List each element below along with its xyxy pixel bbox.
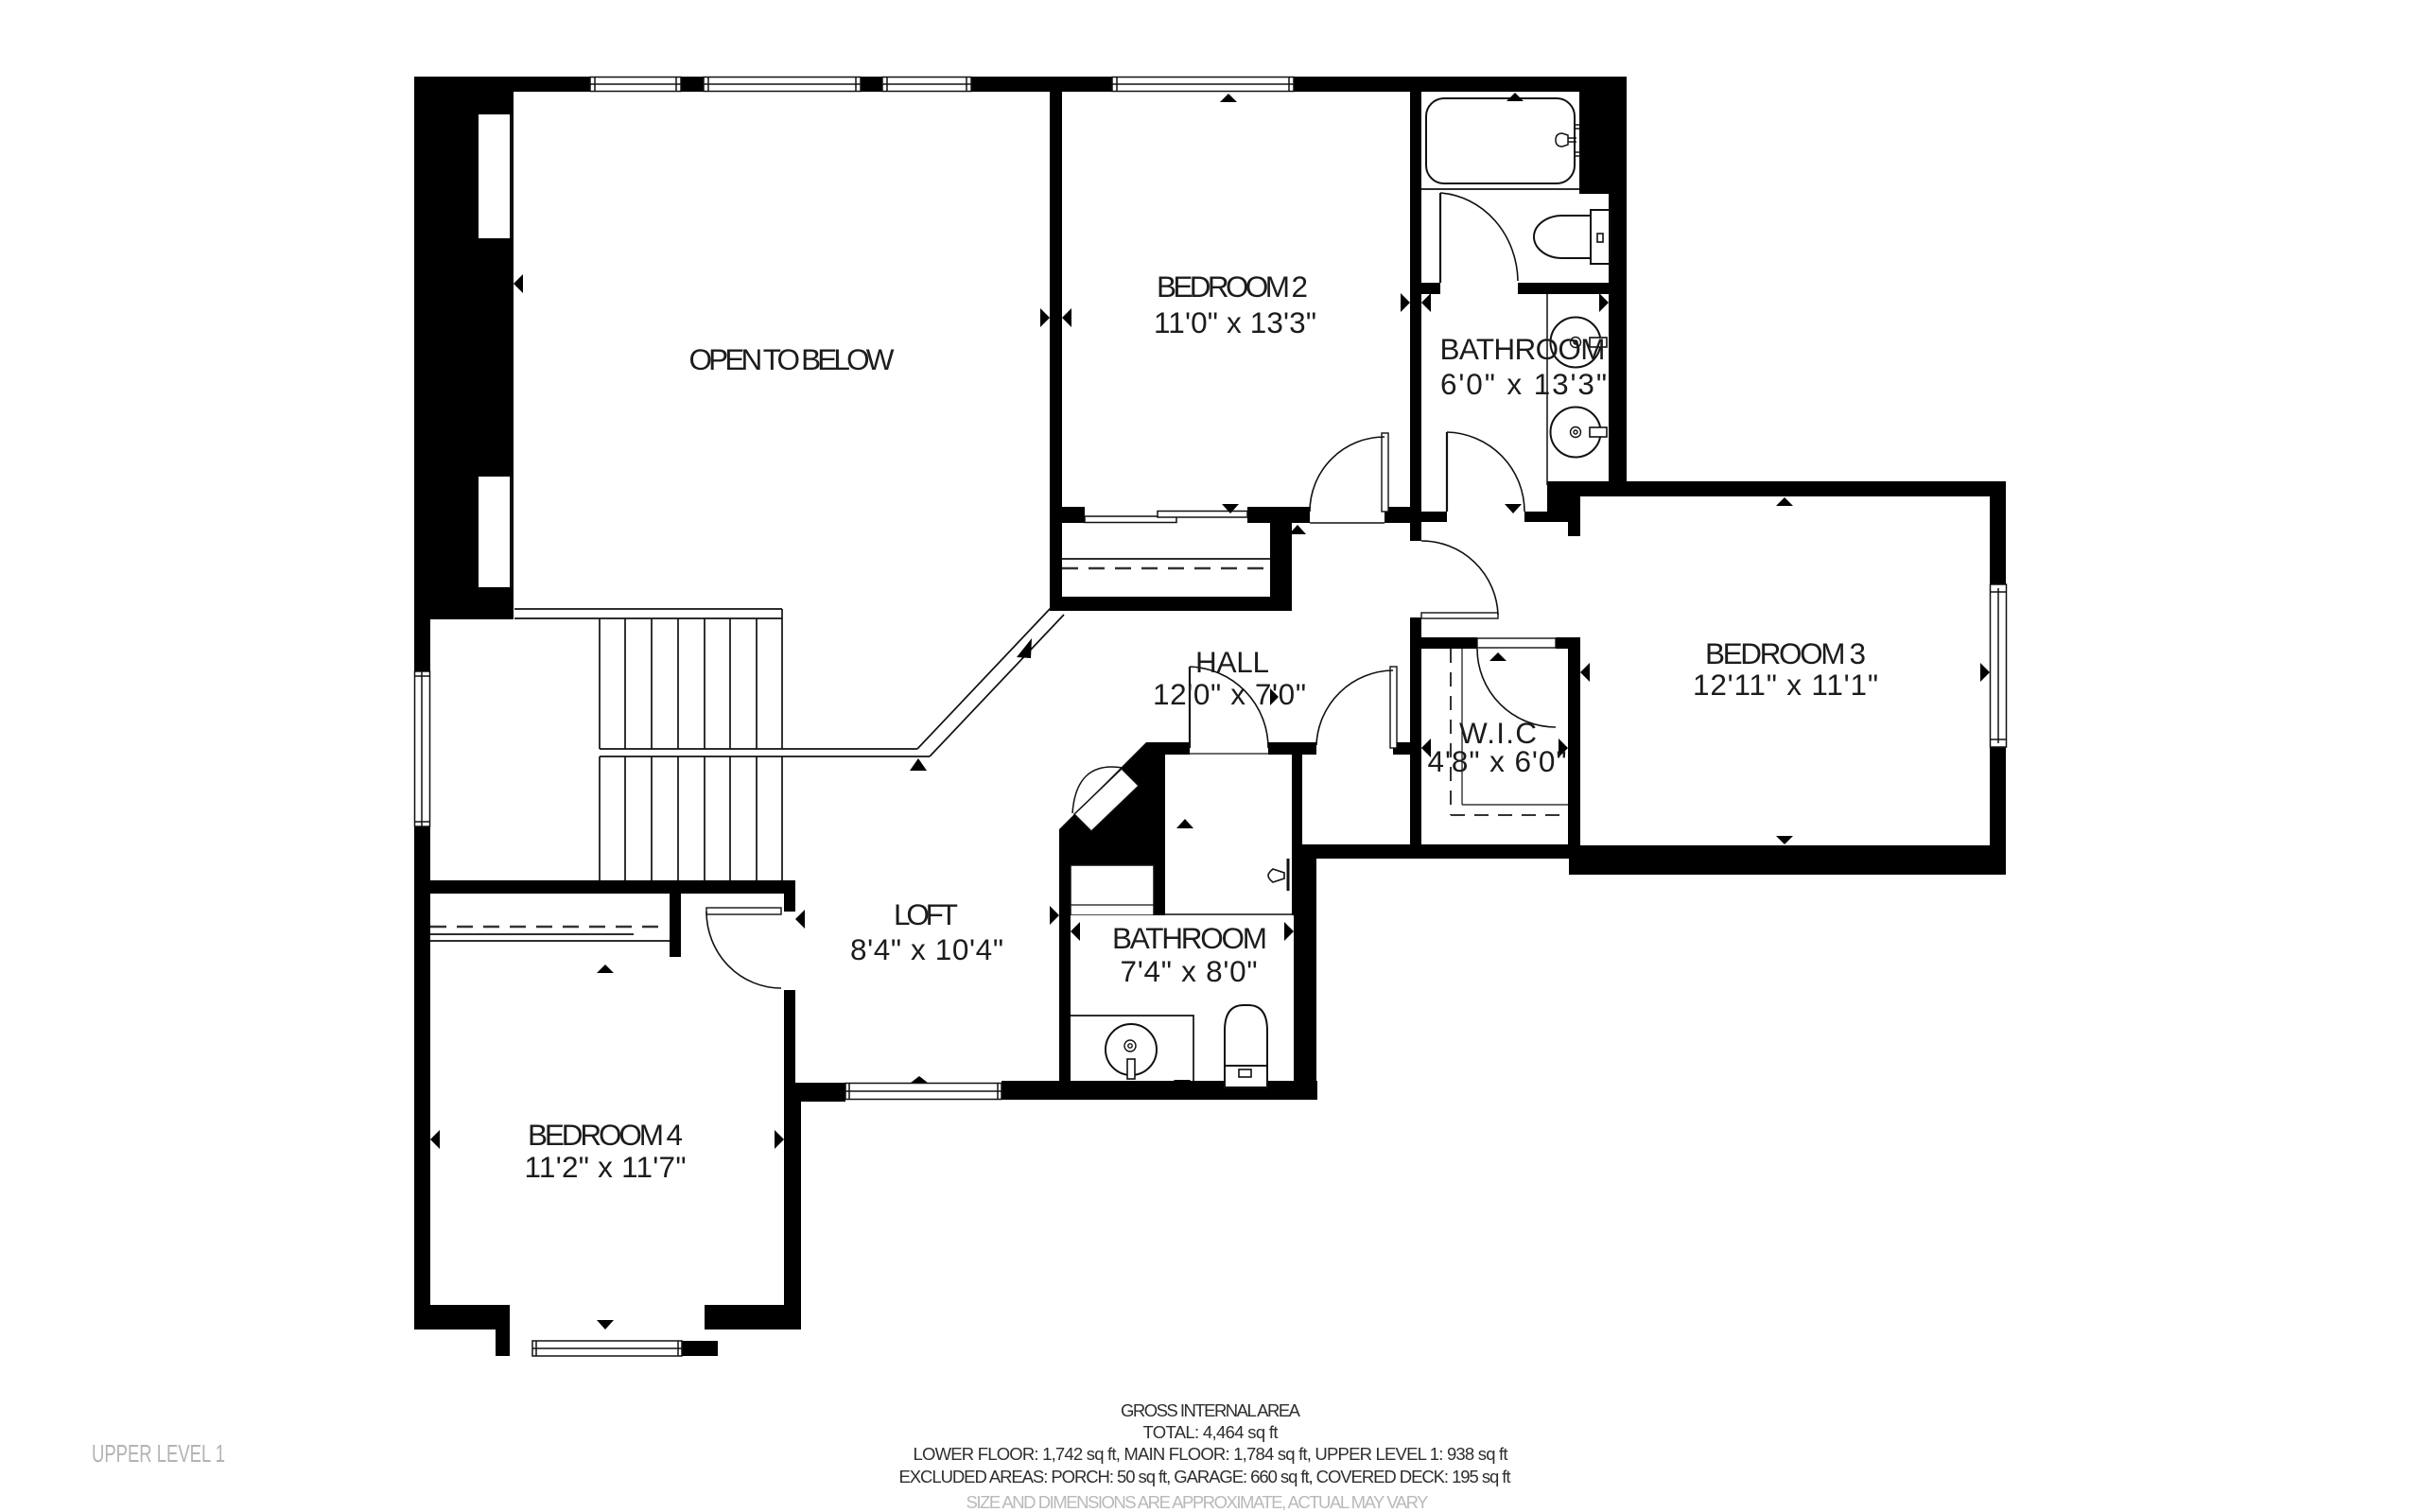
svg-text:HALL: HALL (1195, 645, 1269, 679)
svg-text:BATHROOM: BATHROOM (1440, 332, 1606, 366)
svg-text:LOWER FLOOR: 1,742 sq ft, MAIN: LOWER FLOOR: 1,742 sq ft, MAIN FLOOR: 1,… (914, 1444, 1508, 1464)
svg-text:TOTAL: 4,464 sq ft: TOTAL: 4,464 sq ft (1143, 1422, 1279, 1442)
svg-text:UPPER LEVEL 1: UPPER LEVEL 1 (92, 1439, 225, 1468)
svg-text:BEDROOM 3: BEDROOM 3 (1705, 636, 1866, 670)
svg-text:GROSS INTERNAL AREA: GROSS INTERNAL AREA (1121, 1400, 1301, 1420)
svg-text:11'0" x 13'3": 11'0" x 13'3" (1154, 305, 1316, 339)
svg-text:SIZE AND DIMENSIONS ARE APPROX: SIZE AND DIMENSIONS ARE APPROXIMATE, ACT… (967, 1492, 1429, 1512)
svg-text:8'4" x 10'4": 8'4" x 10'4" (850, 932, 1003, 966)
svg-text:OPEN TO BELOW: OPEN TO BELOW (689, 342, 895, 376)
svg-text:BEDROOM 4: BEDROOM 4 (528, 1118, 683, 1152)
svg-text:7'4" x 8'0": 7'4" x 8'0" (1121, 954, 1258, 988)
svg-text:11'2" x 11'7": 11'2" x 11'7" (525, 1150, 687, 1184)
svg-text:12'11" x 11'1": 12'11" x 11'1" (1693, 668, 1878, 702)
svg-text:EXCLUDED AREAS: PORCH: 50 sq f: EXCLUDED AREAS: PORCH: 50 sq ft, GARAGE:… (899, 1467, 1511, 1486)
svg-text:BATHROOM: BATHROOM (1112, 921, 1267, 955)
svg-text:LOFT: LOFT (894, 897, 958, 931)
svg-text:BEDROOM 2: BEDROOM 2 (1157, 269, 1308, 304)
svg-text:6'0" x 13'3": 6'0" x 13'3" (1440, 367, 1607, 401)
svg-text:4'8" x 6'0": 4'8" x 6'0" (1428, 744, 1567, 778)
svg-text:12'0" x 7'0": 12'0" x 7'0" (1153, 677, 1306, 711)
